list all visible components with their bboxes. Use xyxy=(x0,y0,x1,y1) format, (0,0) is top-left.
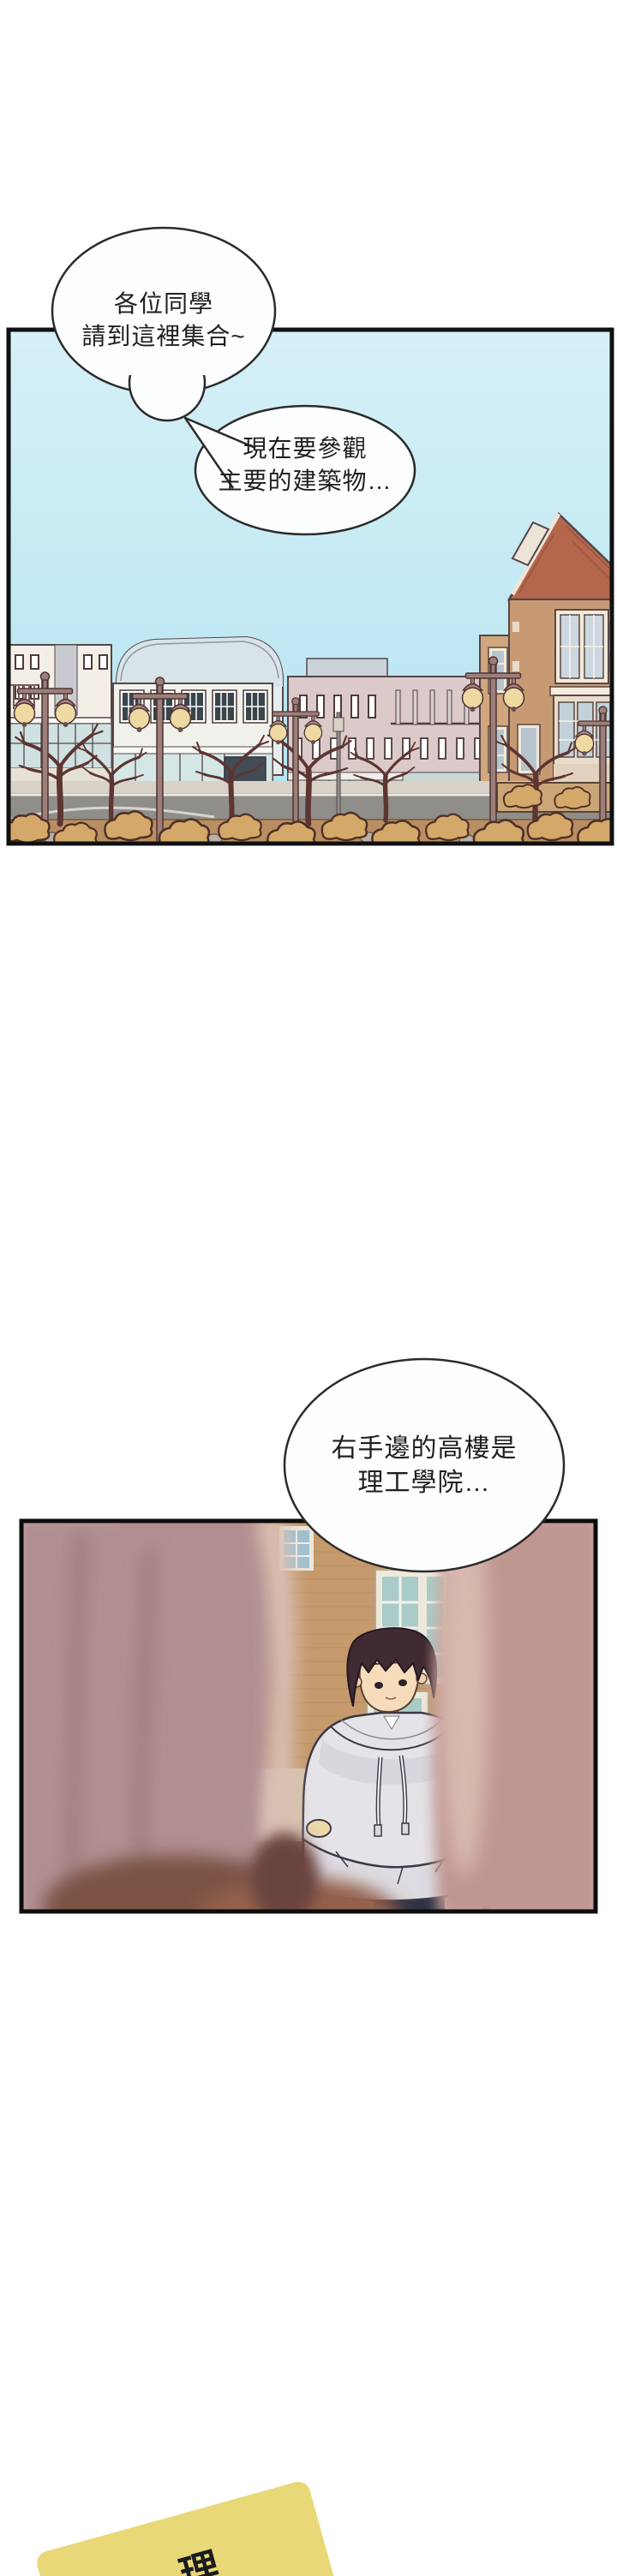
sticky-note-partial-text: 理 xyxy=(172,2536,225,2576)
speech-bubble-2-text: 現在要參觀 主要的建築物… xyxy=(194,432,416,497)
bubble3-line1: 右手邊的高樓是 xyxy=(283,1432,566,1466)
speech-bubble-3-text: 右手邊的高樓是 理工學院… xyxy=(283,1432,566,1500)
comic-page: 各位同學 請到這裡集合~ 現在要參觀 主要的建築物… 右手邊的高樓是 理工學院…… xyxy=(0,0,617,2576)
student-crowd-panel xyxy=(17,1482,600,1966)
bubble1-line1: 各位同學 xyxy=(52,288,275,320)
bubble3-line2: 理工學院… xyxy=(283,1466,566,1500)
bubble2-line1: 現在要參觀 xyxy=(194,432,416,465)
comic-artwork xyxy=(0,0,617,2576)
speech-bubble-1-text: 各位同學 請到這裡集合~ xyxy=(52,288,275,352)
bubble2-line2: 主要的建築物… xyxy=(194,465,416,498)
bubble1-line2: 請到這裡集合~ xyxy=(52,320,275,353)
